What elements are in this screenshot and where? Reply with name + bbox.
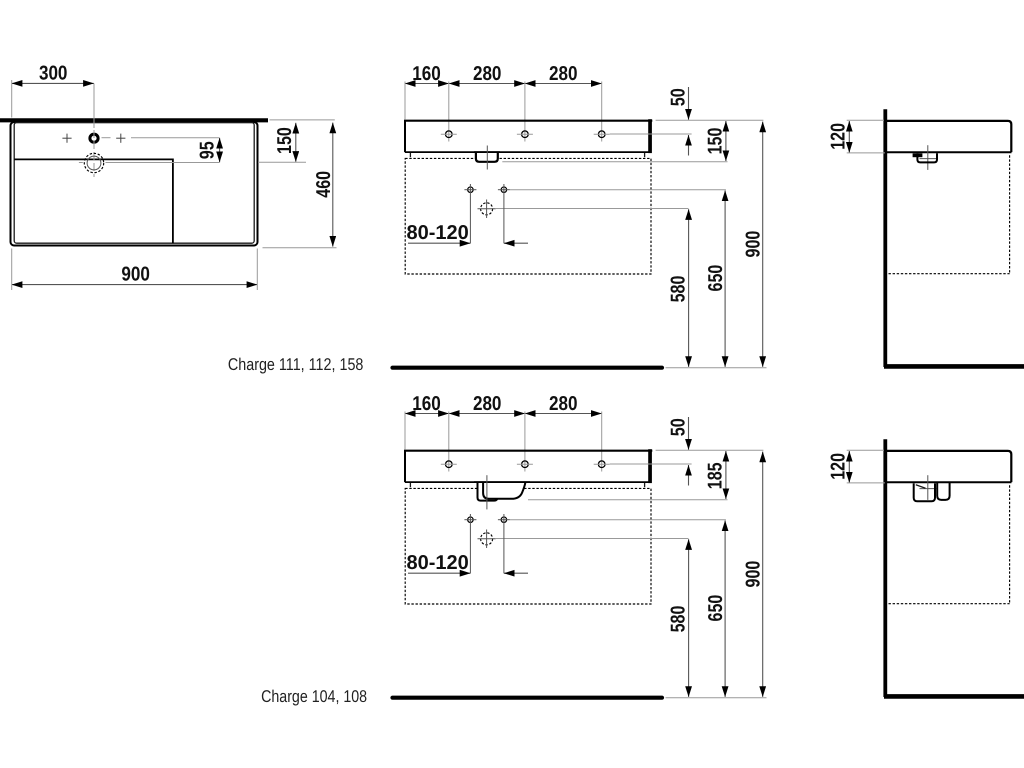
svg-text:460: 460 <box>313 171 335 198</box>
svg-text:160: 160 <box>412 393 441 415</box>
svg-text:185: 185 <box>705 462 727 489</box>
svg-text:280: 280 <box>549 63 578 85</box>
svg-text:80-120: 80-120 <box>407 552 469 574</box>
svg-text:900: 900 <box>742 561 764 588</box>
svg-text:150: 150 <box>705 128 727 155</box>
svg-text:580: 580 <box>667 606 689 633</box>
svg-text:50: 50 <box>667 418 689 436</box>
svg-text:280: 280 <box>473 63 502 85</box>
svg-text:280: 280 <box>473 393 502 415</box>
svg-text:Charge 104, 108: Charge 104, 108 <box>261 687 367 706</box>
svg-text:Charge 111, 112, 158: Charge 111, 112, 158 <box>228 355 364 374</box>
svg-text:300: 300 <box>39 62 68 84</box>
svg-text:580: 580 <box>667 276 689 303</box>
svg-text:280: 280 <box>549 393 578 415</box>
svg-text:900: 900 <box>742 231 764 258</box>
svg-text:95: 95 <box>197 141 219 159</box>
svg-text:650: 650 <box>705 595 727 622</box>
svg-text:50: 50 <box>667 88 689 106</box>
svg-text:150: 150 <box>274 127 296 154</box>
svg-text:650: 650 <box>705 265 727 292</box>
svg-text:160: 160 <box>412 63 441 85</box>
svg-text:120: 120 <box>828 123 850 150</box>
svg-text:80-120: 80-120 <box>407 222 469 244</box>
svg-text:120: 120 <box>828 453 850 480</box>
svg-text:900: 900 <box>121 264 150 286</box>
